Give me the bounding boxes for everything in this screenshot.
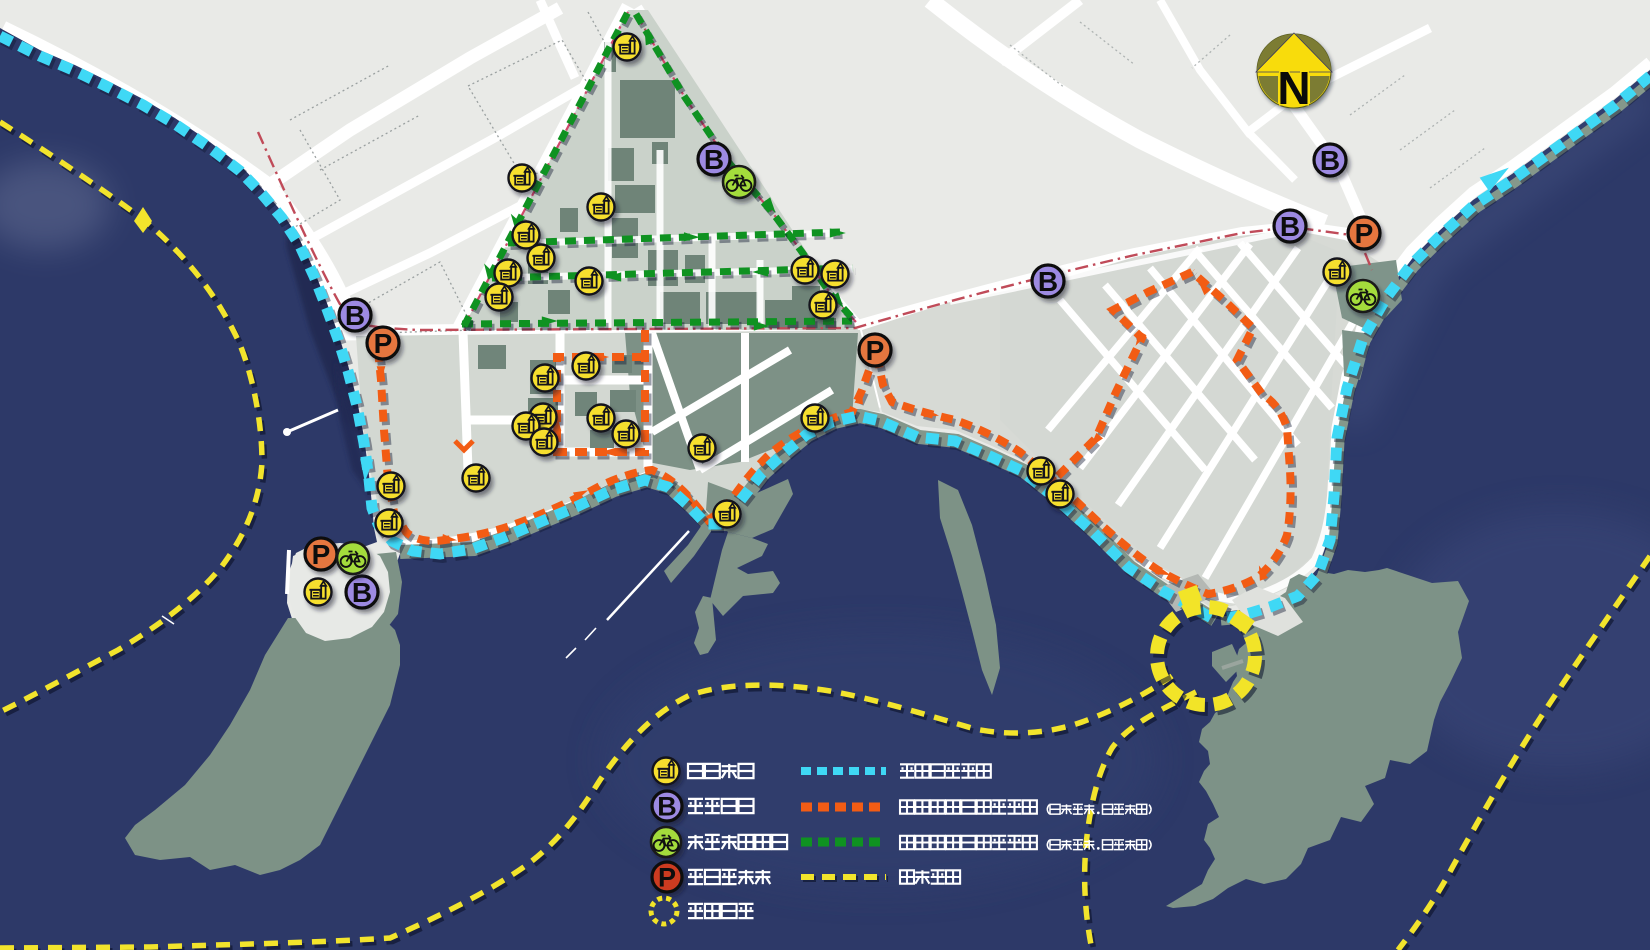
svg-text:N: N (1277, 62, 1310, 114)
svg-text:B: B (345, 300, 365, 331)
svg-text:P: P (374, 328, 393, 359)
svg-text:B: B (352, 577, 372, 608)
svg-text:B: B (1038, 266, 1058, 297)
svg-text:B: B (704, 144, 724, 175)
svg-text:P: P (866, 335, 885, 366)
svg-text:P: P (658, 862, 676, 892)
svg-text:B: B (1280, 211, 1300, 242)
svg-text:P: P (1355, 218, 1374, 249)
svg-text:B: B (1320, 145, 1340, 176)
svg-text:B: B (657, 791, 677, 821)
svg-text:P: P (312, 539, 331, 570)
